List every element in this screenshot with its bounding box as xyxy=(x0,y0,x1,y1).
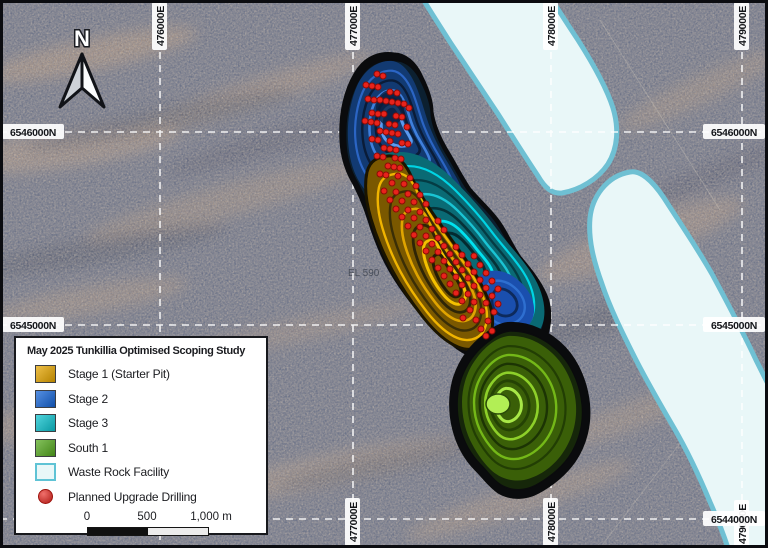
legend-title: May 2025 Tunkillia Optimised Scoping Stu… xyxy=(27,345,258,357)
northing-label-right: 6546000N xyxy=(703,124,765,139)
svg-text:6545000N: 6545000N xyxy=(10,320,56,332)
easting-label-top: 478000E xyxy=(543,2,558,50)
scale-bar: 0 500 1,000 m xyxy=(26,511,258,541)
scale-tick: 500 xyxy=(137,511,156,523)
legend-item-label: Stage 3 xyxy=(68,416,108,430)
scale-bar-graphic xyxy=(87,527,209,536)
map-figure: EL 590 xyxy=(0,0,768,548)
legend-item-label: Stage 1 (Starter Pit) xyxy=(68,367,170,381)
svg-text:477000E: 477000E xyxy=(348,6,360,46)
stage-2-swatch xyxy=(35,390,56,408)
svg-text:6546000N: 6546000N xyxy=(711,127,757,139)
stage-1-swatch xyxy=(35,365,56,383)
northing-label-left: 6545000N xyxy=(2,317,64,332)
legend-item-stage-2: Stage 2 xyxy=(26,387,258,412)
easting-label-top: 477000E xyxy=(345,2,360,50)
northing-label-right: 6545000N xyxy=(703,317,765,332)
legend-item-label: Planned Upgrade Drilling xyxy=(68,490,197,504)
svg-text:477000E: 477000E xyxy=(348,502,360,542)
svg-text:478000E: 478000E xyxy=(546,502,558,542)
easting-label-top: 476000E xyxy=(152,2,167,50)
scale-tick: 0 xyxy=(84,511,90,523)
north-arrow-label: N xyxy=(74,26,90,51)
easting-label-bottom: 478000E xyxy=(543,498,558,546)
map-legend: May 2025 Tunkillia Optimised Scoping Stu… xyxy=(14,336,268,535)
legend-item-label: Waste Rock Facility xyxy=(68,465,169,479)
svg-text:6545000N: 6545000N xyxy=(711,320,757,332)
northing-label-left: 6546000N xyxy=(2,124,64,139)
legend-item-drilling: Planned Upgrade Drilling xyxy=(26,485,258,510)
legend-item-label: Stage 2 xyxy=(68,392,108,406)
legend-item-south-1: South 1 xyxy=(26,436,258,461)
svg-text:479000E: 479000E xyxy=(737,6,749,46)
south-1-swatch xyxy=(35,439,56,457)
legend-item-stage-3: Stage 3 xyxy=(26,411,258,436)
waste-rock-swatch xyxy=(35,463,56,481)
stage-3-swatch xyxy=(35,414,56,432)
svg-text:6546000N: 6546000N xyxy=(10,127,56,139)
legend-item-waste-rock: Waste Rock Facility xyxy=(26,460,258,485)
legend-item-label: South 1 xyxy=(68,441,108,455)
legend-item-stage-1: Stage 1 (Starter Pit) xyxy=(26,362,258,387)
drilling-dot-swatch xyxy=(38,489,53,504)
easting-label-top: 479000E xyxy=(734,2,749,50)
northing-label-right: 6544000N xyxy=(703,511,765,526)
svg-text:6544000N: 6544000N xyxy=(711,514,757,526)
scale-tick: 1,000 m xyxy=(190,511,232,523)
easting-label-bottom: 477000E xyxy=(345,498,360,546)
svg-text:476000E: 476000E xyxy=(155,6,167,46)
svg-text:478000E: 478000E xyxy=(546,6,558,46)
